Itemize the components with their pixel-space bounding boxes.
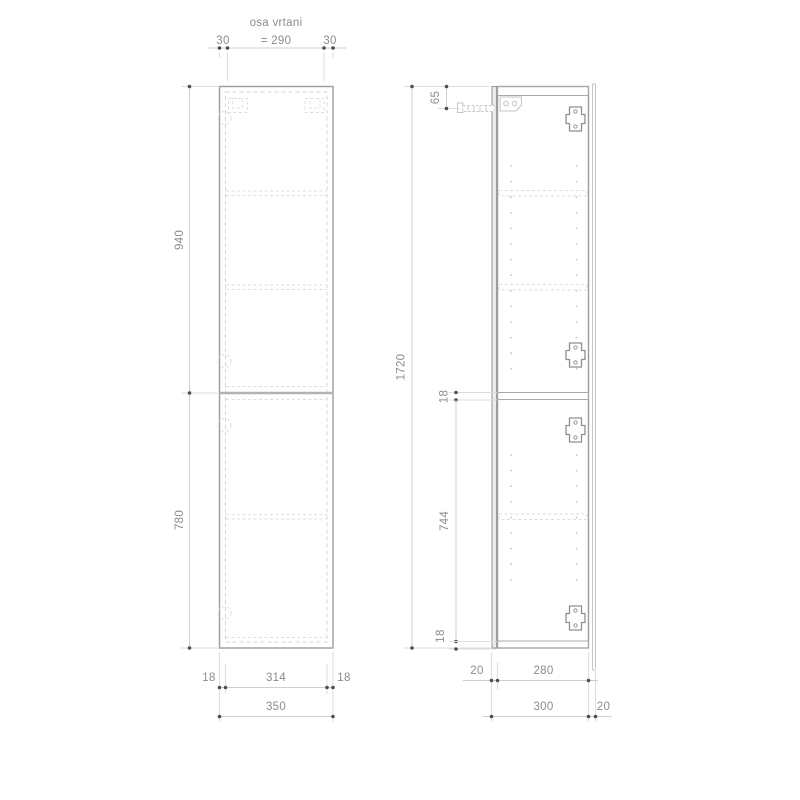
side-door-panel	[492, 87, 497, 649]
technical-drawing-page: osa vrtani = 290 30 30 940 780 18 314 18	[0, 0, 800, 800]
side-view	[458, 84, 596, 670]
front-dimensions: osa vrtani = 290 30 30 940 780 18 314 18	[174, 17, 351, 722]
dim-lower-section: 744	[439, 511, 451, 531]
front-carcass-dashed-outline	[226, 92, 328, 642]
front-hanger-bracket-right	[305, 99, 324, 113]
dim-bottom-inner-width: 314	[266, 672, 286, 684]
dim-door-depth: 20	[470, 665, 483, 677]
hinge-plate-bottom	[566, 606, 585, 630]
dim-total-height: 1720	[396, 354, 408, 381]
dim-lower-height: 780	[174, 510, 186, 530]
hinge-plate-lower-mid	[566, 418, 585, 442]
side-divider-board	[498, 393, 589, 400]
front-hanger-bracket-left	[229, 99, 248, 113]
dim-total-depth: 300	[533, 701, 553, 713]
side-top-board	[498, 87, 589, 96]
dim-body-depth: 280	[533, 665, 553, 677]
dim-bottom-total-width: 350	[266, 701, 286, 713]
front-shelf-lines	[226, 191, 327, 638]
cabinet-drawing: osa vrtani = 290 30 30 940 780 18 314 18	[0, 0, 800, 800]
front-cabinet-outline	[220, 87, 334, 649]
side-wall-line	[593, 84, 596, 670]
wall-anchor-screw	[458, 103, 495, 113]
hanger-bracket	[500, 97, 522, 111]
side-bottom-board	[498, 641, 589, 648]
dim-divider-thickness: 18	[439, 390, 451, 403]
dim-back-clearance: 20	[597, 701, 610, 713]
hinge-plate-upper-mid	[566, 343, 585, 367]
drilling-axis-label: osa vrtani	[250, 17, 303, 29]
dim-bottom-thickness: 18	[435, 629, 447, 642]
dim-upper-height: 940	[174, 230, 186, 250]
dim-top-axis: = 290	[261, 35, 292, 47]
front-view	[218, 87, 333, 649]
shelf-pin-holes	[510, 165, 577, 581]
dim-hanger-offset: 65	[430, 91, 442, 104]
dim-top-left: 30	[216, 35, 229, 47]
dim-bottom-right-thickness: 18	[337, 672, 350, 684]
dim-bottom-left-thickness: 18	[202, 672, 215, 684]
hinge-plate-top	[566, 107, 585, 131]
dim-top-right: 30	[323, 35, 336, 47]
